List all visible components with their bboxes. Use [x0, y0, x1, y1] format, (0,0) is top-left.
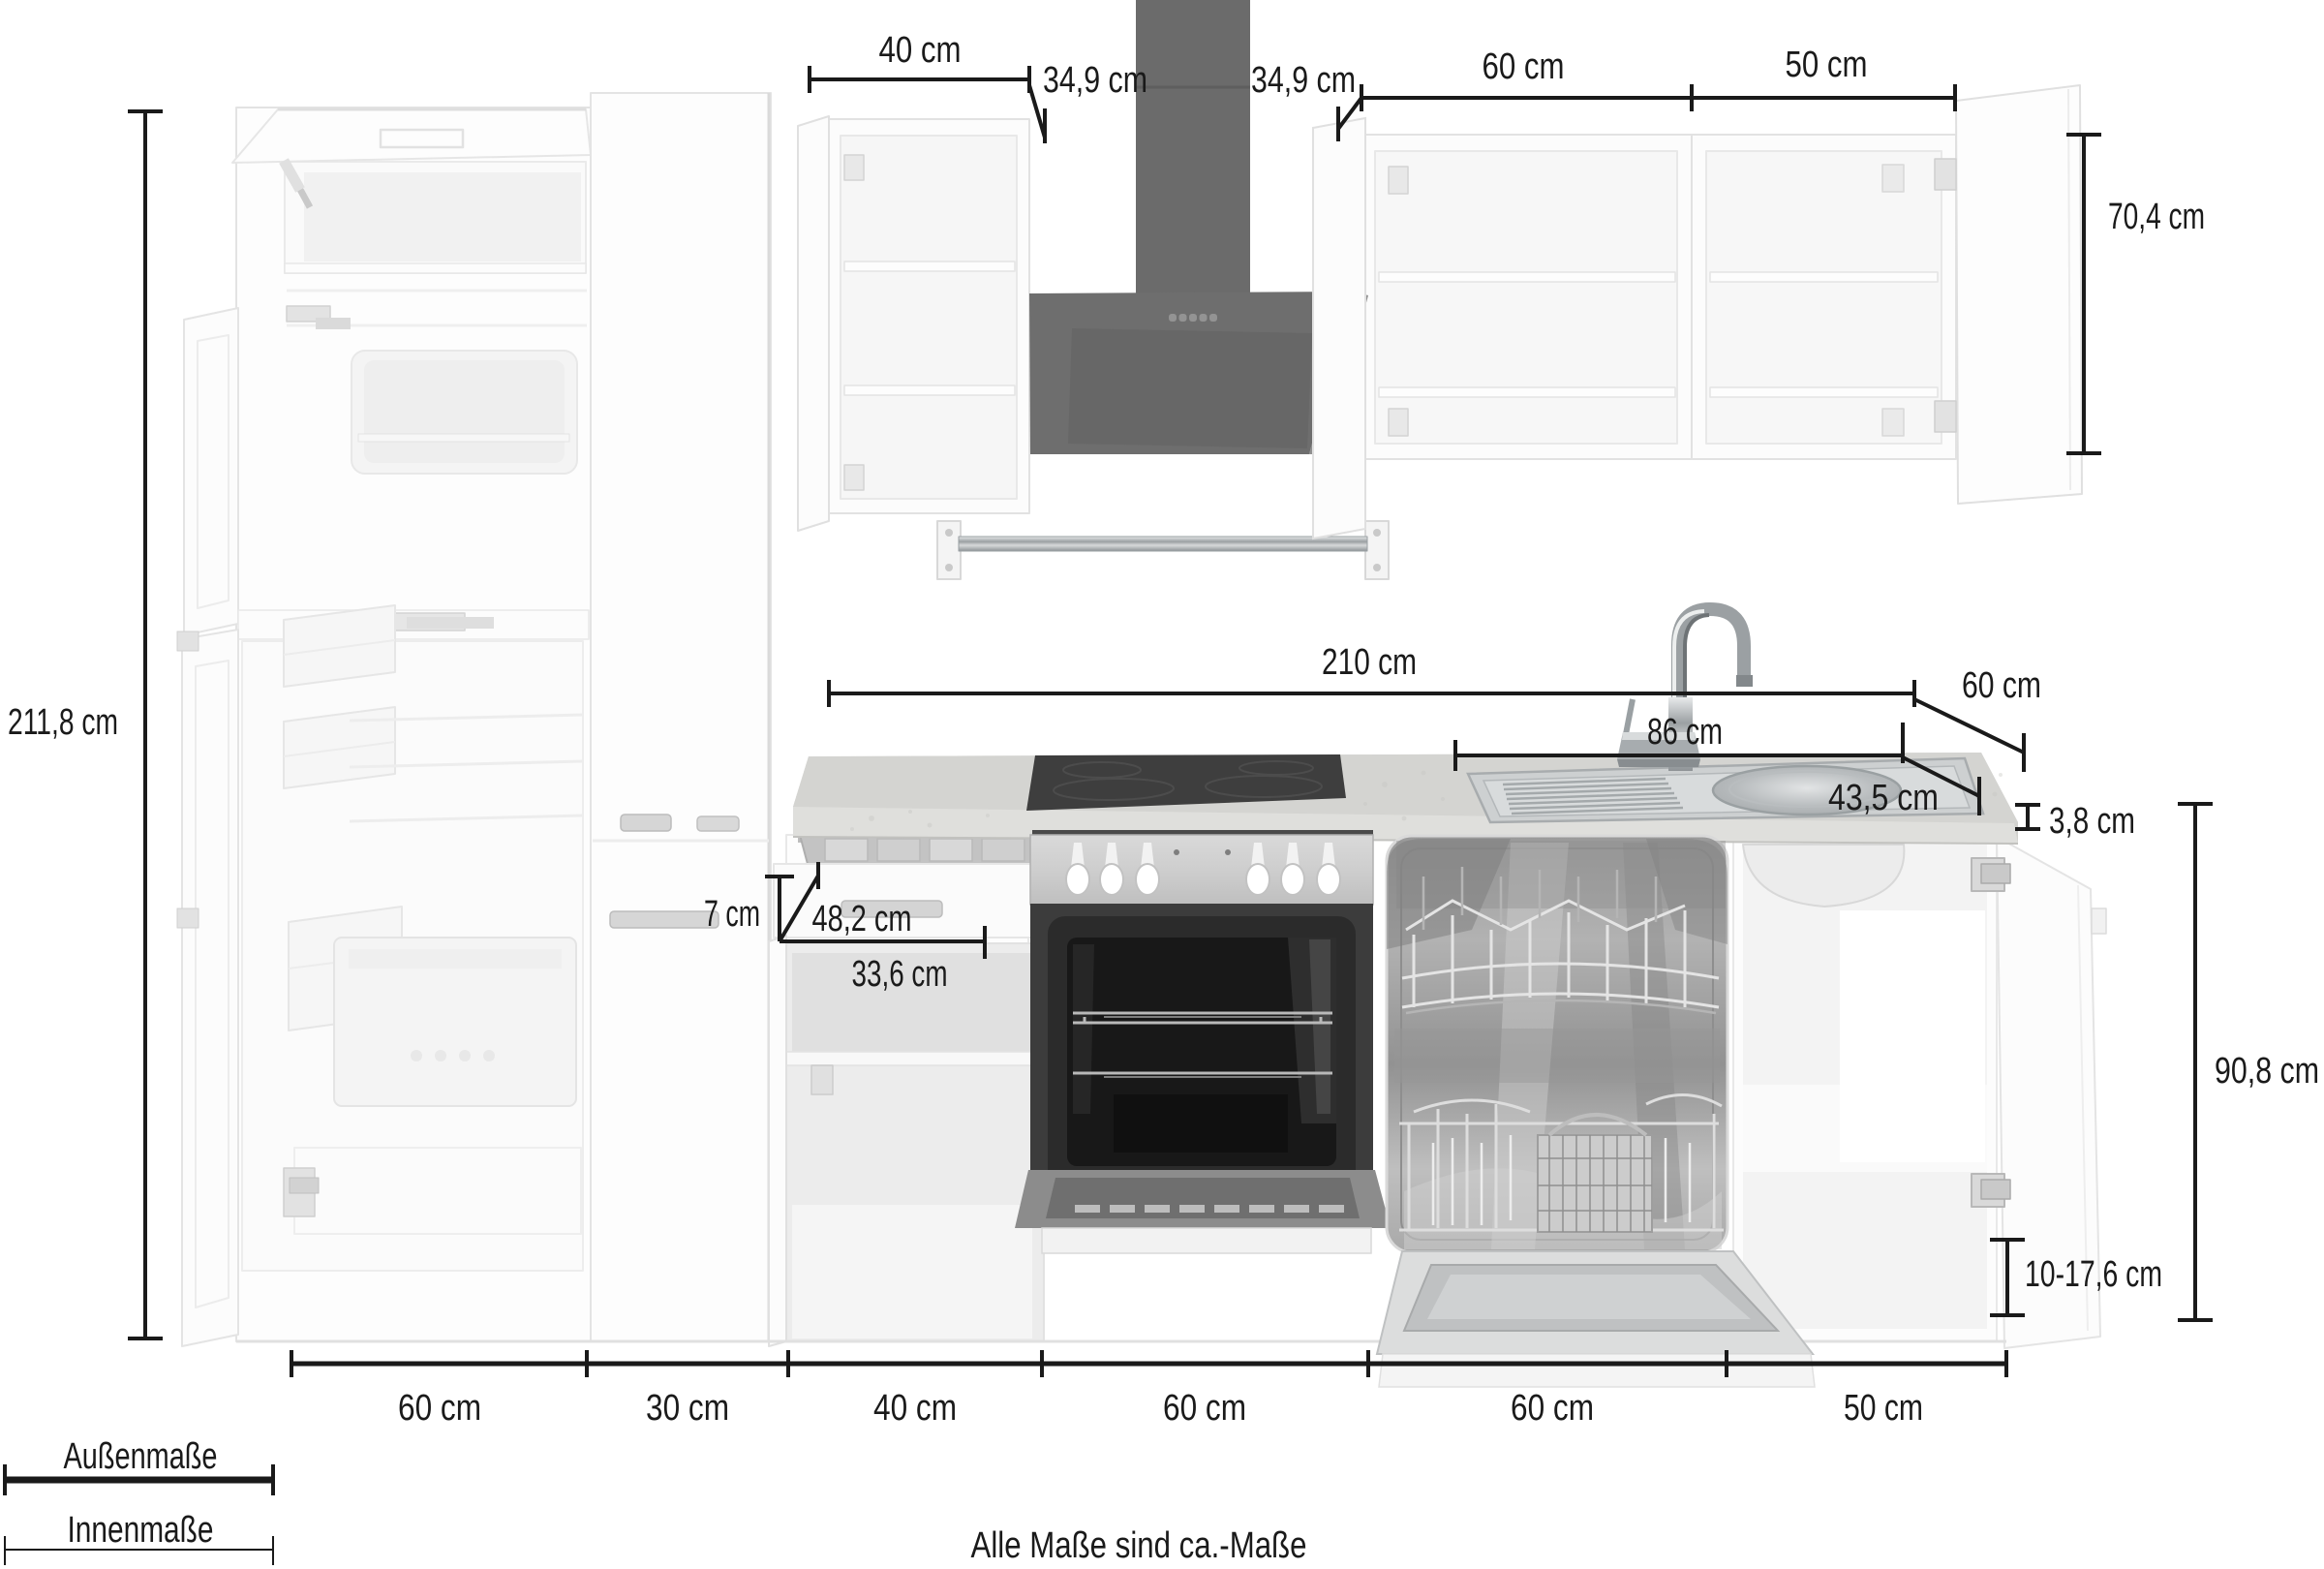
svg-text:Außenmaße: Außenmaße	[64, 1436, 218, 1477]
svg-text:86 cm: 86 cm	[1647, 712, 1723, 753]
svg-text:7 cm: 7 cm	[704, 894, 760, 935]
svg-text:43,5 cm: 43,5 cm	[1828, 778, 1939, 818]
svg-text:50 cm: 50 cm	[1844, 1388, 1923, 1429]
svg-text:60 cm: 60 cm	[1163, 1388, 1246, 1429]
svg-text:33,6 cm: 33,6 cm	[852, 954, 948, 995]
svg-text:60 cm: 60 cm	[1483, 46, 1565, 87]
svg-text:40 cm: 40 cm	[873, 1388, 957, 1429]
svg-text:70,4 cm: 70,4 cm	[2108, 197, 2205, 237]
svg-text:210 cm: 210 cm	[1322, 642, 1417, 683]
svg-text:Alle Maße sind ca.-Maße: Alle Maße sind ca.-Maße	[971, 1525, 1307, 1566]
svg-text:60 cm: 60 cm	[398, 1388, 481, 1429]
svg-text:60 cm: 60 cm	[1511, 1388, 1594, 1429]
svg-text:50 cm: 50 cm	[1786, 45, 1868, 85]
svg-text:48,2 cm: 48,2 cm	[812, 899, 912, 939]
svg-text:Innenmaße: Innenmaße	[68, 1510, 214, 1551]
svg-text:10-17,6 cm: 10-17,6 cm	[2025, 1254, 2162, 1295]
svg-text:40 cm: 40 cm	[879, 30, 962, 71]
svg-text:34,9 cm: 34,9 cm	[1251, 60, 1356, 101]
svg-text:34,9 cm: 34,9 cm	[1043, 60, 1147, 101]
svg-text:211,8 cm: 211,8 cm	[8, 702, 118, 743]
svg-text:60 cm: 60 cm	[1962, 665, 2041, 706]
svg-text:90,8 cm: 90,8 cm	[2215, 1051, 2319, 1092]
svg-text:30 cm: 30 cm	[646, 1388, 729, 1429]
svg-text:3,8 cm: 3,8 cm	[2049, 801, 2135, 842]
